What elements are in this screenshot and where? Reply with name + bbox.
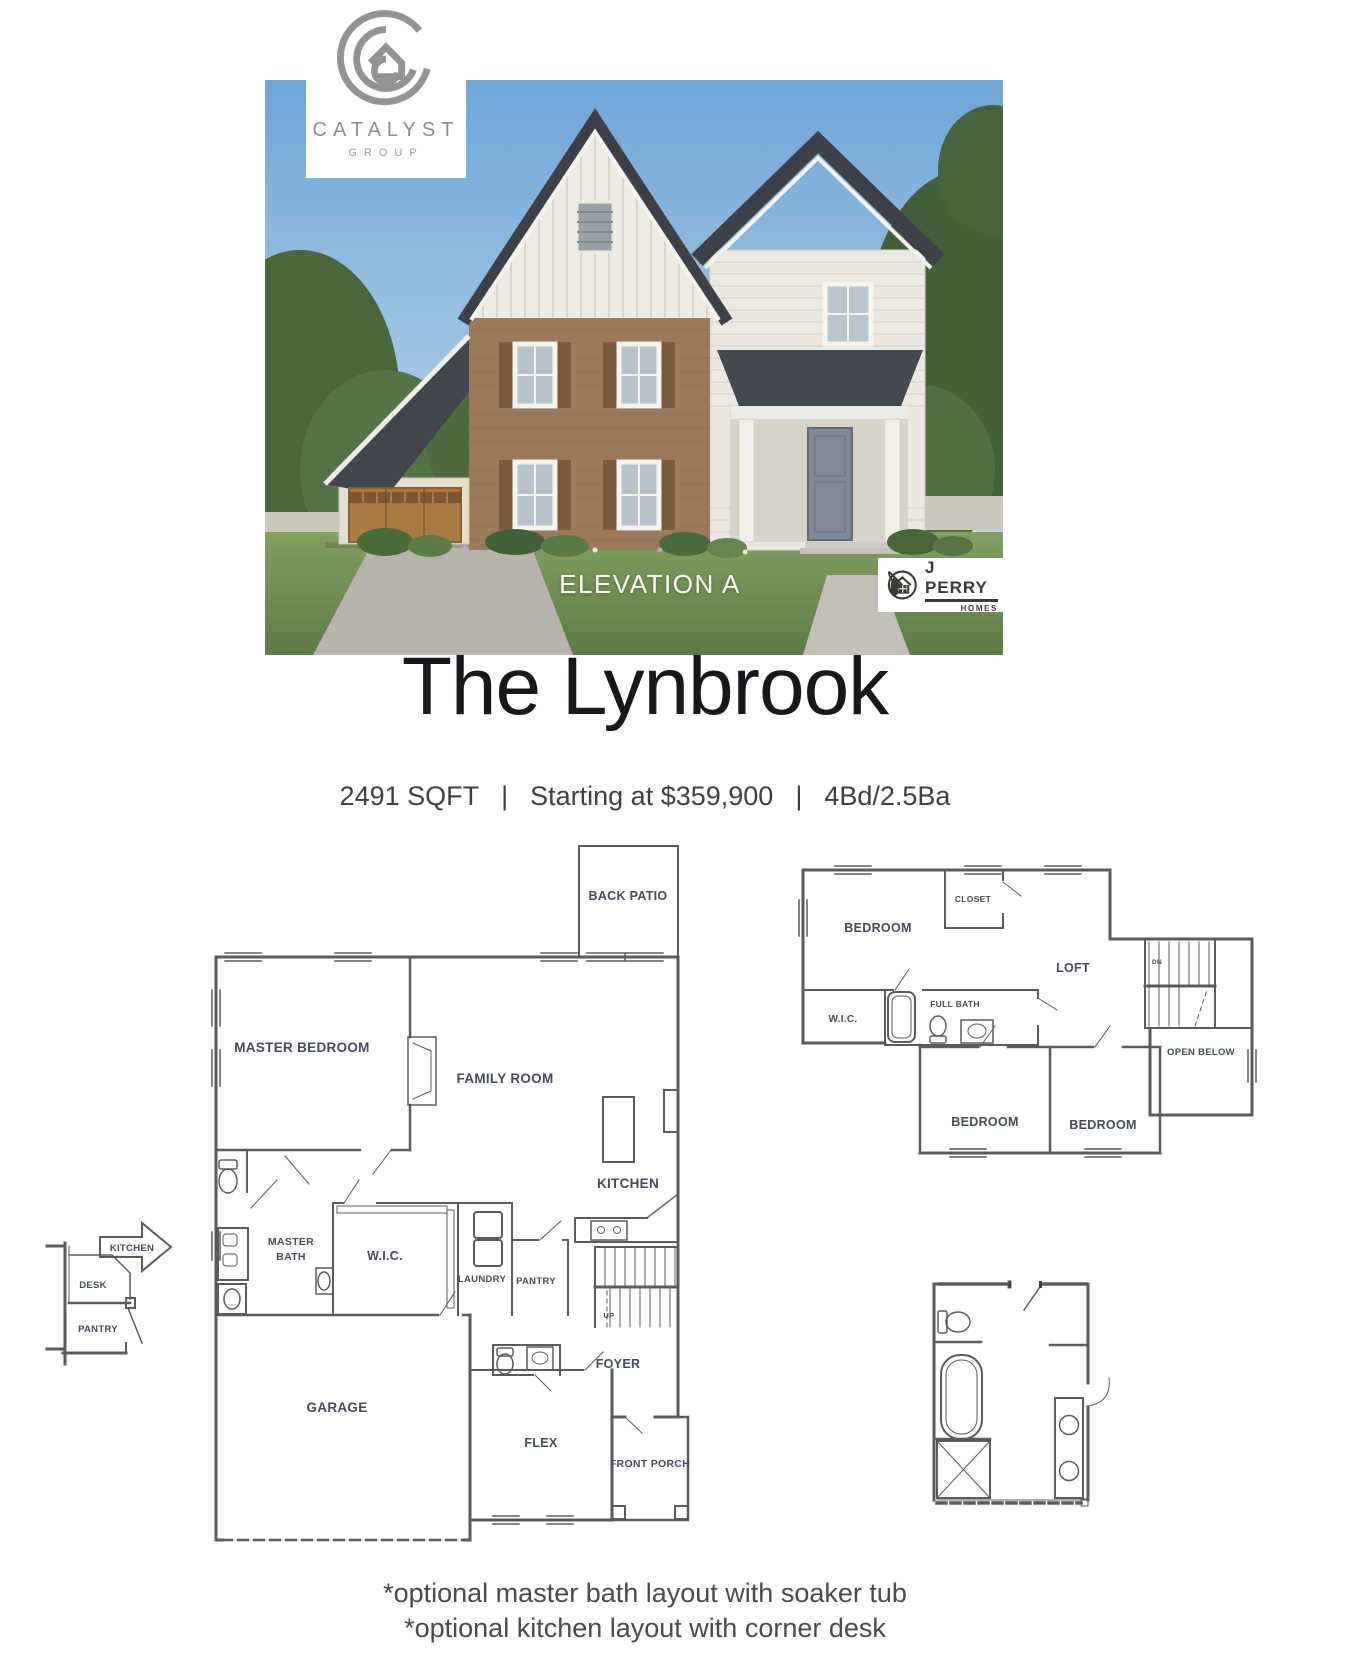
second-floor-labels: BEDROOM CLOSET LOFT W.I.C. FULL BATH DN … [828, 894, 1234, 1132]
label-closet: CLOSET [955, 894, 992, 904]
catalyst-name: CATALYST [313, 119, 460, 142]
catalyst-logo: CATALYST GROUP [306, 0, 466, 178]
flyer-page: ELEVATION A J PERRY HOMES [0, 0, 1348, 1668]
label-kitchen-arrow: KITCHEN [110, 1243, 154, 1254]
label-bedroom-middle: BEDROOM [951, 1115, 1018, 1129]
label-foyer: FOYER [596, 1357, 641, 1371]
spec-price: Starting at $359,900 [519, 781, 784, 812]
spec-separator: | [490, 781, 519, 812]
catalyst-group: GROUP [348, 147, 423, 159]
label-loft: LOFT [1056, 961, 1090, 975]
second-floor-walls [803, 870, 1252, 1153]
label-pantry: PANTRY [516, 1276, 556, 1287]
label-up: UP [603, 1311, 614, 1320]
label-pantry2: PANTRY [78, 1324, 118, 1335]
front-porch-section [717, 350, 923, 554]
label-laundry: LAUNDRY [458, 1274, 507, 1285]
spec-beds-baths: 4Bd/2.5Ba [813, 781, 961, 812]
jperry-logo-text: J PERRY HOMES [925, 558, 998, 613]
catalyst-logo-icon [335, 8, 437, 110]
optional-master-bath-plan [925, 1275, 1115, 1515]
jperry-homes: HOMES [961, 604, 998, 613]
label-garage: GARAGE [306, 1400, 367, 1415]
first-floor-plan: BACK PATIO MASTER BEDROOM FAMILY ROOM KI… [195, 840, 695, 1550]
label-wic: W.I.C. [367, 1249, 403, 1263]
label-family-room: FAMILY ROOM [456, 1071, 553, 1086]
jperry-house-icon [883, 565, 920, 605]
first-floor-walls [216, 846, 688, 1540]
label-bedroom-right: BEDROOM [1069, 1118, 1136, 1132]
footnote-bath: *optional master bath layout with soaker… [0, 1576, 1290, 1611]
spec-separator: | [784, 781, 813, 812]
soaker-tub [941, 1355, 982, 1439]
first-floor-fixtures [218, 1090, 688, 1519]
label-master-bath-2: BATH [276, 1251, 306, 1263]
label-front-porch: FRONT PORCH [610, 1458, 690, 1470]
first-floor-labels: BACK PATIO MASTER BEDROOM FAMILY ROOM KI… [234, 889, 690, 1470]
label-dn: DN [1152, 959, 1162, 966]
jperry-logo: J PERRY HOMES [878, 558, 1003, 612]
label-back-patio: BACK PATIO [589, 889, 668, 903]
label-flex: FLEX [524, 1436, 558, 1450]
label-wic2: W.I.C. [828, 1014, 857, 1025]
label-master-bath-1: MASTER [268, 1236, 314, 1248]
elevation-label: ELEVATION A [559, 569, 741, 600]
label-kitchen: KITCHEN [597, 1176, 659, 1191]
plan-specs: 2491 SQFT | Starting at $359,900 | 4Bd/2… [0, 781, 1290, 812]
label-bedroom-left: BEDROOM [844, 921, 911, 935]
label-desk: DESK [79, 1280, 107, 1291]
vanity [1055, 1398, 1083, 1498]
footnotes: *optional master bath layout with soaker… [0, 1576, 1290, 1646]
label-master-bedroom: MASTER BEDROOM [234, 1040, 369, 1055]
optional-kitchen-plan: KITCHEN DESK PANTRY [38, 1185, 178, 1370]
second-floor-plan: BEDROOM CLOSET LOFT W.I.C. FULL BATH DN … [795, 810, 1260, 1160]
second-floor-windows [799, 866, 1256, 1157]
plan-title: The Lynbrook [0, 640, 1290, 734]
optional-bath-fixtures [937, 1311, 1088, 1506]
jperry-name: J PERRY [925, 558, 998, 602]
label-full-bath: FULL BATH [930, 999, 980, 1009]
footnote-kitchen: *optional kitchen layout with corner des… [0, 1611, 1290, 1646]
spec-sqft: 2491 SQFT [329, 781, 491, 812]
label-open-below: OPEN BELOW [1167, 1047, 1235, 1058]
